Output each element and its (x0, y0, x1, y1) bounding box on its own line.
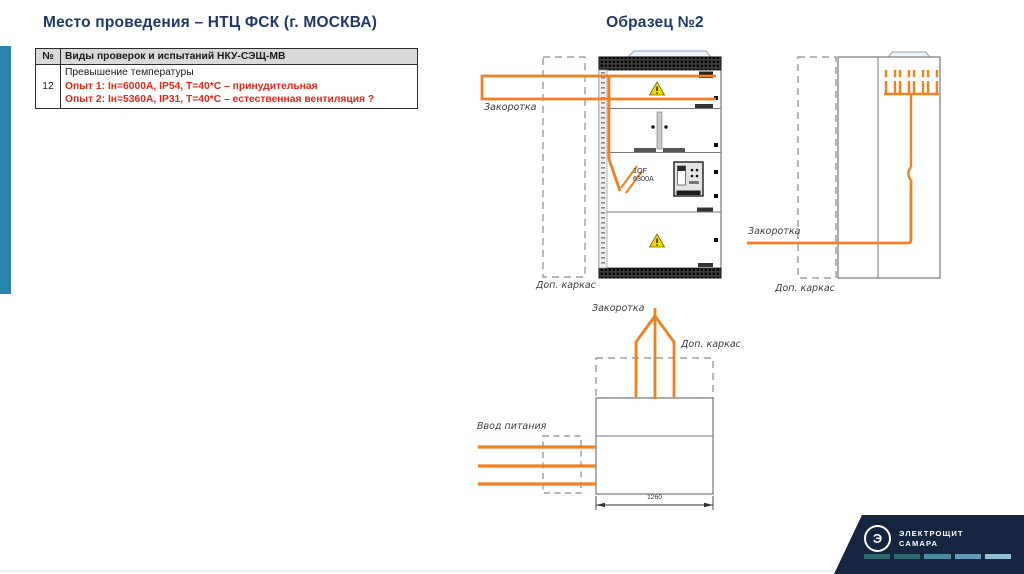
shunt-label-front: Закоротка (484, 102, 536, 113)
logo-dash (864, 554, 890, 559)
aux-frame-label-plan: Доп. каркас (681, 339, 741, 350)
logo-dash (985, 554, 1011, 559)
shunt-label-plan: Закоротка (592, 303, 644, 314)
circuit-breaker-unit (674, 162, 703, 196)
door-handle-2 (697, 208, 713, 212)
power-input-label: Ввод питания (477, 421, 546, 432)
logo-dashes (864, 554, 1011, 559)
supply-busbars (478, 447, 596, 484)
aux-frame-outline (798, 57, 836, 278)
logo-text: ЭЛЕКТРОЩИТ САМАРА (899, 529, 964, 550)
post-foot-left (634, 148, 656, 152)
post-bolt-left (651, 125, 654, 128)
aux-frame-label-side: Доп. каркас (775, 283, 835, 294)
door-handle-1 (695, 104, 713, 108)
cabinet-body (838, 57, 940, 278)
breaker-label: 1QF 6300А (633, 167, 654, 184)
logo-line-1: ЭЛЕКТРОЩИТ (899, 529, 964, 539)
front-view-diagram (482, 51, 721, 278)
post-foot-right (663, 148, 685, 152)
plan-view-diagram (478, 308, 713, 510)
aux-frame-label-front: Доп. каркас (536, 280, 596, 291)
post-bolt-right (664, 125, 667, 128)
logo-glyph: Э (873, 532, 882, 545)
aux-frame-outline (543, 57, 585, 277)
vent-band-bottom (599, 268, 721, 278)
door-handle-3 (698, 263, 713, 267)
dimension-value: 1260 (596, 494, 713, 501)
center-post (657, 112, 662, 149)
logo-dash (924, 554, 950, 559)
side-view-diagram (747, 52, 940, 278)
roof-cap (628, 51, 711, 57)
shunt-tent (636, 308, 674, 399)
diagram-canvas (0, 0, 1024, 574)
logo-dash (894, 554, 920, 559)
logo-emblem-icon: Э (864, 525, 891, 552)
roof-cap (888, 52, 930, 57)
breaker-rating: 6300А (633, 175, 654, 183)
logo-line-2: САМАРА (899, 539, 964, 549)
cabinet-footprint (596, 398, 713, 494)
logo-dash (955, 554, 981, 559)
vent-band-top (599, 57, 721, 70)
presentation-slide: Место проведения – НТЦ ФСК (г. МОСКВА) О… (0, 0, 1024, 574)
shunt-label-side: Закоротка (748, 226, 800, 237)
